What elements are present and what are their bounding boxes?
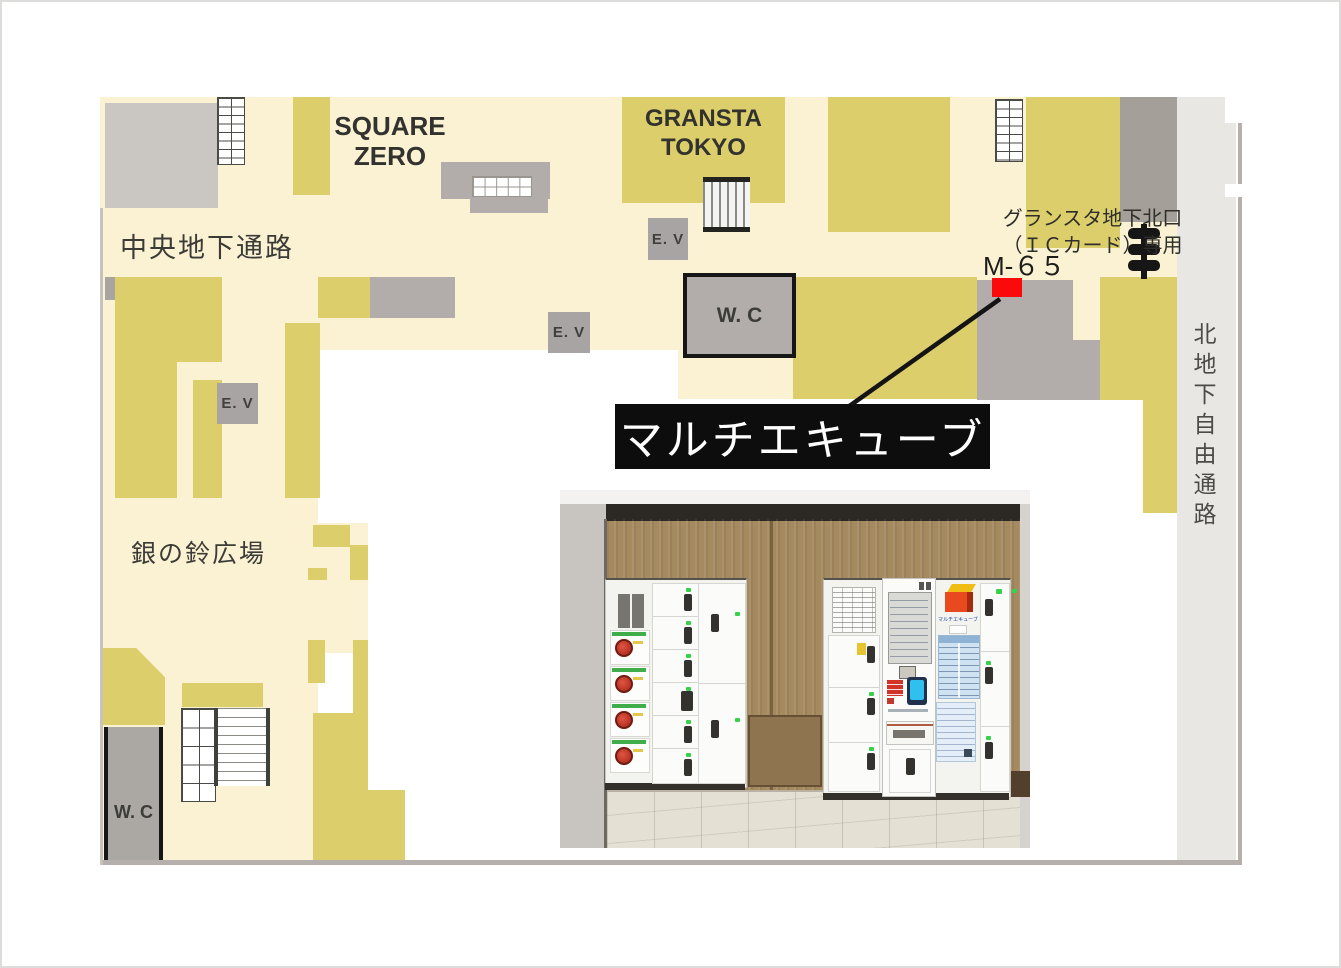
small-red-button[interactable] (887, 698, 894, 704)
locker-callout-label: マルチエキューブ (615, 404, 990, 469)
elevator-label: E. V (553, 324, 585, 341)
map-border-bottom (100, 860, 1242, 865)
ic-gate-bar (1128, 260, 1160, 271)
central-passage-label: 中央地下通路 (120, 226, 294, 265)
elevator-label: E. V (221, 395, 253, 412)
facility-block (370, 277, 455, 318)
facility-block (105, 277, 115, 300)
cell-banner (612, 704, 646, 708)
cell-label (633, 713, 643, 716)
kiosk-lower-door[interactable] (889, 749, 931, 793)
door-handle[interactable] (711, 720, 719, 738)
locker-door-large[interactable] (698, 683, 746, 784)
priority-sticker (857, 643, 866, 655)
toilet-box: W. C (104, 727, 163, 860)
shop-block (182, 683, 263, 707)
led-indicator (869, 692, 874, 696)
shop-block (313, 525, 350, 547)
shop-block (308, 640, 325, 683)
stairs-icon (995, 99, 1023, 162)
elevator-box: E. V (548, 312, 590, 353)
door-handle[interactable] (684, 594, 692, 611)
led-indicator (1012, 589, 1017, 593)
cube-front (945, 592, 967, 612)
gransta-line1: GRANSTA (645, 105, 762, 134)
cube-logo-text: マルチエキューブ (937, 616, 979, 623)
service-hatch (748, 715, 822, 787)
north-gate-line1: グランスタ地下北口 (1003, 206, 1183, 233)
square-zero-label: SQUARE ZERO (337, 112, 443, 172)
elevator-box: E. V (648, 218, 688, 260)
bank-kick (605, 783, 745, 790)
led-indicator (735, 612, 740, 616)
cube-logo (945, 584, 973, 614)
locker-door-large[interactable] (980, 651, 1010, 728)
locker-cell[interactable] (610, 630, 650, 665)
door-handle[interactable] (684, 726, 692, 743)
locker-door[interactable] (652, 616, 700, 651)
cell-label (633, 677, 643, 680)
door-handle[interactable] (867, 646, 875, 663)
locker-door[interactable] (652, 649, 700, 684)
elevator-label: E. V (652, 231, 684, 248)
led-indicator (735, 718, 740, 722)
cell-banner (612, 632, 646, 636)
led-indicator (869, 747, 874, 751)
door-handle[interactable] (684, 660, 692, 677)
payment-kiosk (882, 578, 936, 797)
callout-text: マルチエキューブ (620, 406, 985, 468)
elevator-box: E. V (217, 383, 258, 424)
poster-column-gap (958, 643, 960, 698)
escalator-icon (703, 177, 750, 232)
locker-door[interactable] (652, 583, 700, 618)
locker-door[interactable] (652, 715, 700, 750)
stairs-icon (217, 97, 245, 165)
toilet-label: W. C (108, 802, 159, 823)
shop-block (1100, 277, 1177, 400)
locker-door[interactable] (652, 682, 700, 717)
led-indicator (686, 753, 691, 757)
door-handle[interactable] (867, 698, 875, 715)
toilet-label: W. C (717, 304, 763, 328)
facility-block (1120, 97, 1177, 222)
gransta-tokyo-label: GRANSTA TOKYO (622, 105, 785, 163)
shop-block (313, 713, 368, 862)
shop-block (285, 323, 320, 498)
ticket-gate-icon (472, 176, 532, 197)
ticket-slot[interactable] (893, 730, 925, 738)
left-pillar (560, 504, 606, 848)
locker-door[interactable] (652, 748, 700, 784)
dial-lock[interactable] (615, 675, 633, 693)
led-indicator (996, 589, 1002, 594)
square-zero-line1: SQUARE (334, 112, 445, 142)
door-handle[interactable] (867, 753, 875, 770)
dial-lock[interactable] (615, 639, 633, 657)
small-tag (949, 625, 967, 634)
usage-guide-poster (938, 635, 980, 699)
north-free-passage-label: 北地下自由通路 (1186, 322, 1220, 532)
door-handle[interactable] (711, 614, 719, 632)
locker-photo: マルチエキューブ (560, 490, 1030, 848)
qr-code (964, 749, 972, 757)
locker-location-marker (992, 278, 1022, 297)
locker-door-large[interactable] (828, 742, 880, 792)
kiosk-screen[interactable] (890, 594, 928, 660)
emergency-sticker (887, 680, 903, 696)
led-indicator (686, 654, 691, 658)
door-handle[interactable] (681, 691, 693, 711)
led-indicator (686, 720, 691, 724)
door-handle[interactable] (684, 627, 692, 644)
locker-cell[interactable] (610, 738, 650, 773)
qr-reader-glow (910, 680, 924, 700)
vent-grille (618, 594, 630, 628)
cell-banner (612, 740, 646, 744)
shop-block (308, 568, 327, 580)
passage-gap (1225, 184, 1242, 197)
led-indicator (986, 736, 991, 740)
ticket-slot-panel (886, 721, 934, 745)
passage-gap (1225, 97, 1242, 123)
shop-block (318, 277, 370, 318)
door-handle[interactable] (906, 758, 915, 775)
facility-block (105, 103, 218, 208)
map-border-left (100, 208, 103, 865)
ticket-gate-block (470, 199, 548, 213)
usage-guide-poster (936, 702, 976, 762)
vent-grille (632, 594, 644, 628)
station-locker-map-figure: E. V E. V E. V W. C W. C 中央地下通路 SQUARE Z… (0, 0, 1341, 968)
dial-lock[interactable] (615, 711, 633, 729)
led-indicator (686, 621, 691, 625)
shop-block (115, 277, 222, 362)
shop-block (293, 97, 330, 195)
map-border-right (1238, 97, 1242, 862)
toilet-box: W. C (683, 273, 796, 358)
door-handle[interactable] (985, 667, 993, 684)
cell-label (633, 641, 643, 644)
locker-door-large[interactable] (828, 687, 880, 744)
locker-cell[interactable] (610, 702, 650, 737)
cell-label (633, 749, 643, 752)
shop-block (368, 790, 405, 862)
stairs-icon (181, 708, 216, 802)
kiosk-text-line (888, 709, 928, 712)
instruction-poster (832, 587, 876, 633)
locker-door-large[interactable] (698, 583, 746, 685)
dial-lock[interactable] (615, 747, 633, 765)
poster-header (939, 636, 979, 643)
led-indicator (686, 588, 691, 592)
gransta-line2: TOKYO (661, 134, 746, 163)
shop-block (115, 361, 177, 498)
facility-block (977, 340, 1100, 400)
locker-door-large[interactable] (980, 726, 1010, 792)
square-zero-line2: ZERO (354, 142, 426, 172)
stairs-icon (214, 708, 270, 786)
kiosk-header-logos (919, 582, 931, 590)
shop-block (353, 640, 368, 715)
gin-no-suzu-label: 銀の鈴広場 (131, 534, 266, 570)
locker-cell[interactable] (610, 666, 650, 701)
cube-side (967, 592, 973, 612)
shop-block (828, 97, 950, 232)
door-handle[interactable] (985, 599, 993, 616)
door-handle[interactable] (985, 742, 993, 759)
shop-block (1143, 400, 1177, 513)
locker-door-large[interactable] (980, 583, 1010, 653)
slot-accent-line (887, 724, 933, 726)
locker-door-large[interactable] (828, 635, 880, 689)
door-handle[interactable] (684, 759, 692, 776)
shop-block (350, 545, 368, 580)
cell-banner (612, 668, 646, 672)
shop-block (793, 277, 977, 399)
led-indicator (986, 661, 991, 665)
